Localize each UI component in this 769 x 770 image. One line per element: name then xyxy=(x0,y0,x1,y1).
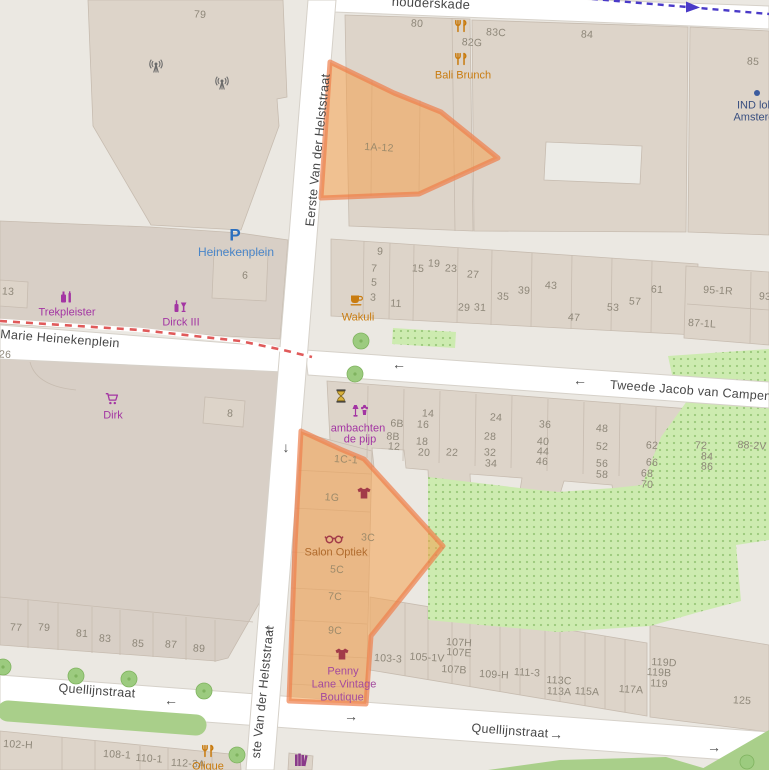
house-number: 6 xyxy=(242,271,249,282)
house-number: 20 xyxy=(418,447,431,458)
house-number: 32 xyxy=(484,447,497,458)
poi-label[interactable]: Olique xyxy=(192,762,224,770)
house-number: 68 xyxy=(641,468,654,479)
street-name-label: Quellijnstraat xyxy=(471,722,549,740)
house-number: 23 xyxy=(445,263,458,274)
house-number: 109-H xyxy=(479,669,509,681)
map-labels-layer: houderskadeEerste Van der Helststraatste… xyxy=(0,0,769,770)
street-name-label: Tweede Jacob van Campens xyxy=(610,379,769,404)
house-number: 95-1R xyxy=(703,285,733,297)
selected-plot-number: 3C xyxy=(361,532,376,543)
oneway-arrow-icon: ← xyxy=(164,693,178,707)
house-number: 53 xyxy=(607,302,620,313)
house-number: 102-H xyxy=(3,739,33,751)
parking-icon[interactable]: P xyxy=(229,227,240,244)
street-name-label: houderskade xyxy=(392,0,471,11)
house-number: 36 xyxy=(539,419,552,430)
alcohol-icon[interactable] xyxy=(173,300,187,313)
house-number: 119B xyxy=(646,667,671,679)
house-number: 58 xyxy=(596,469,609,480)
oneway-arrow-icon: ↓ xyxy=(283,440,290,454)
house-number: 115A xyxy=(574,686,599,698)
house-number: 39 xyxy=(518,285,531,296)
poi-label[interactable]: Wakuli xyxy=(342,313,375,324)
crafts-icon[interactable] xyxy=(351,404,370,418)
cafe-icon[interactable] xyxy=(350,294,364,307)
house-number: 16 xyxy=(417,419,430,430)
poi-label[interactable]: ambachten xyxy=(331,424,385,435)
poi-label[interactable]: Salon Optiek xyxy=(305,548,368,559)
poi-label[interactable]: Dirk xyxy=(103,411,123,422)
house-number: 84 xyxy=(701,451,714,462)
selected-plot-number: 5C xyxy=(330,564,345,575)
selected-plot-number: 1A-12 xyxy=(364,142,394,154)
house-number: 105-1V xyxy=(409,652,445,665)
house-number: 82G xyxy=(461,37,482,49)
house-number: 79 xyxy=(194,9,207,20)
house-number: 81 xyxy=(76,628,89,639)
house-number: 85 xyxy=(132,638,145,649)
house-number: 5 xyxy=(371,278,378,289)
house-number: 47 xyxy=(568,312,581,323)
hourglass-icon[interactable] xyxy=(336,389,346,403)
oneway-arrow-icon: → xyxy=(344,709,358,723)
house-number: 89 xyxy=(193,643,206,654)
house-number: 110-1 xyxy=(135,753,163,765)
house-number: 12 xyxy=(388,441,401,452)
house-number: 9 xyxy=(377,247,384,258)
map-canvas[interactable]: houderskadeEerste Van der Helststraatste… xyxy=(0,0,769,770)
house-number: 22 xyxy=(446,447,459,458)
house-number: 34 xyxy=(485,458,498,469)
house-number: 31 xyxy=(474,302,487,313)
house-number: 107E xyxy=(446,647,472,659)
house-number: 86 xyxy=(701,461,714,472)
house-number: 19 xyxy=(428,258,441,269)
poi-label[interactable]: Heinekenplein xyxy=(198,246,274,258)
house-number: 15 xyxy=(412,263,425,274)
house-number: 111-3 xyxy=(514,667,541,679)
street-name-label: Quellijnstraat xyxy=(58,682,136,700)
house-number: 125 xyxy=(733,695,752,707)
antenna-icon[interactable] xyxy=(149,60,164,75)
house-number: 70 xyxy=(641,479,654,490)
selected-plot-number: 7C xyxy=(328,591,343,602)
house-number: 18 xyxy=(416,436,429,447)
house-number: 80 xyxy=(411,18,424,29)
glasses-icon[interactable] xyxy=(325,534,344,545)
house-number: 29 xyxy=(458,302,471,313)
street-name-label: Marie Heinekenplein xyxy=(0,328,120,350)
house-number: 119 xyxy=(650,678,668,690)
poi-label[interactable]: Amsterda xyxy=(733,113,769,124)
house-number: 108-1 xyxy=(103,749,131,761)
house-number: 46 xyxy=(536,456,549,467)
house-number: 107B xyxy=(441,664,467,676)
antenna-icon[interactable] xyxy=(215,77,230,92)
house-number: 84 xyxy=(581,29,594,40)
tshirt-icon[interactable] xyxy=(335,648,350,661)
house-number: 26 xyxy=(0,349,11,360)
house-number: 113C xyxy=(546,675,572,687)
books-icon[interactable] xyxy=(294,753,308,768)
house-number: 8 xyxy=(227,409,234,420)
poi-label[interactable]: Penny xyxy=(327,667,358,678)
oneway-arrow-icon: ← xyxy=(392,357,406,371)
house-number: 61 xyxy=(651,284,664,295)
house-number: 83 xyxy=(99,633,112,644)
house-number: 85 xyxy=(747,56,760,67)
house-number: 27 xyxy=(467,269,480,280)
house-number: 52 xyxy=(596,441,609,452)
house-number: 11 xyxy=(390,298,402,309)
house-number: 62 xyxy=(646,440,659,451)
house-number: 7 xyxy=(371,264,378,275)
house-number: 112-3A xyxy=(171,758,206,770)
house-number: 43 xyxy=(545,280,558,291)
tshirt-icon[interactable] xyxy=(357,487,372,500)
poi-label[interactable]: de pijp xyxy=(344,435,376,446)
restaurant-icon[interactable] xyxy=(455,53,468,66)
house-number: 28 xyxy=(484,431,497,442)
house-number: 3 xyxy=(370,293,377,304)
house-number: 57 xyxy=(629,296,642,307)
house-number: 72 xyxy=(695,440,708,451)
house-number: 87 xyxy=(165,639,178,650)
street-name-label: Eerste Van der Helststraat xyxy=(304,73,332,227)
oneway-arrow-icon: ↓ xyxy=(266,621,273,635)
house-number: 44 xyxy=(537,446,550,457)
house-number: 66 xyxy=(646,457,659,468)
house-number: 8B xyxy=(386,431,400,442)
house-number: 83C xyxy=(486,27,506,39)
house-number: 119D xyxy=(651,657,677,669)
poi-label[interactable]: Boutique xyxy=(320,693,363,704)
poi-label[interactable]: IND lok xyxy=(737,101,769,112)
cart-icon[interactable] xyxy=(105,393,119,406)
oneway-arrow-icon: ← xyxy=(573,373,587,387)
house-number: 103-3 xyxy=(374,653,402,665)
poi-label[interactable]: Lane Vintage xyxy=(312,680,377,691)
house-number: 88-2V xyxy=(737,440,767,452)
house-number: 93 xyxy=(759,291,769,302)
house-number: 56 xyxy=(596,458,609,469)
dot-icon[interactable] xyxy=(753,89,761,97)
house-number: 48 xyxy=(596,423,609,434)
house-number: 6B xyxy=(390,418,404,429)
selected-plot-number: 9C xyxy=(328,625,343,636)
street-name-label: ste Van der Helststraat xyxy=(250,625,276,759)
poi-label[interactable]: Trekpleister xyxy=(38,308,95,319)
house-number: 107H xyxy=(446,637,472,649)
house-number: 117A xyxy=(618,684,643,696)
oneway-arrow-icon: → xyxy=(707,740,721,754)
house-number: 13 xyxy=(2,286,15,297)
poi-label[interactable]: Bali Brunch xyxy=(435,71,491,82)
house-number: 79 xyxy=(38,622,51,633)
house-number: 14 xyxy=(422,408,435,419)
selected-plot-number: 1C-1 xyxy=(334,454,359,466)
house-number: 24 xyxy=(490,412,503,423)
house-number: 40 xyxy=(537,436,550,447)
restaurant-icon[interactable] xyxy=(202,745,215,758)
oneway-arrow-icon: → xyxy=(549,727,563,741)
chemist-icon[interactable] xyxy=(60,291,73,304)
restaurant-icon[interactable] xyxy=(455,20,468,33)
house-number: 77 xyxy=(10,622,23,633)
house-number: 87-1L xyxy=(688,318,716,330)
poi-label[interactable]: Dirck III xyxy=(162,318,199,329)
house-number: 113A xyxy=(546,686,571,698)
house-number: 35 xyxy=(497,291,510,302)
selected-plot-number: 1G xyxy=(324,492,339,503)
